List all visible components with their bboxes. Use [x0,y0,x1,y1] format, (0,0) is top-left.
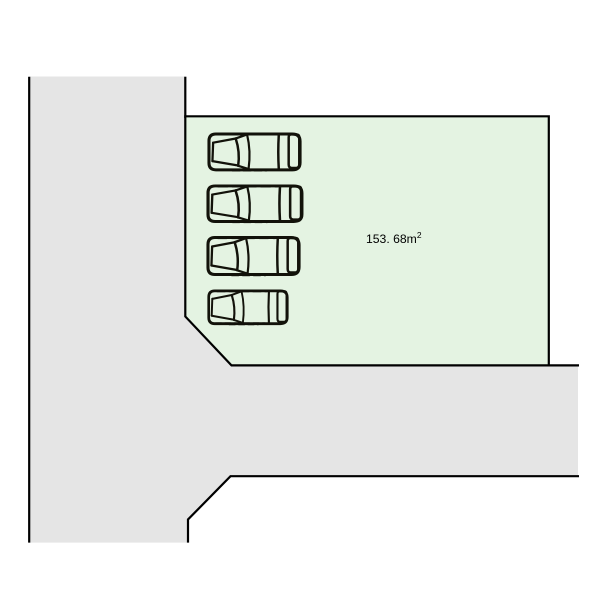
svg-text:153. 68m2: 153. 68m2 [366,230,422,246]
